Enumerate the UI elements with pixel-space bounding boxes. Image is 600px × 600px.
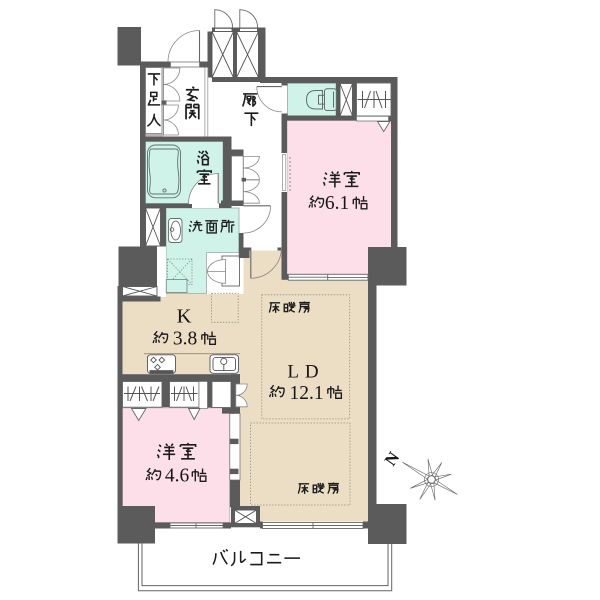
svg-text:3.8: 3.8 xyxy=(173,329,197,350)
svg-text:6.1: 6.1 xyxy=(325,193,349,214)
svg-text:12.1: 12.1 xyxy=(289,383,323,404)
svg-text:4.6: 4.6 xyxy=(165,466,190,487)
svg-text:LD: LD xyxy=(287,362,324,383)
svg-text:K: K xyxy=(177,306,192,328)
